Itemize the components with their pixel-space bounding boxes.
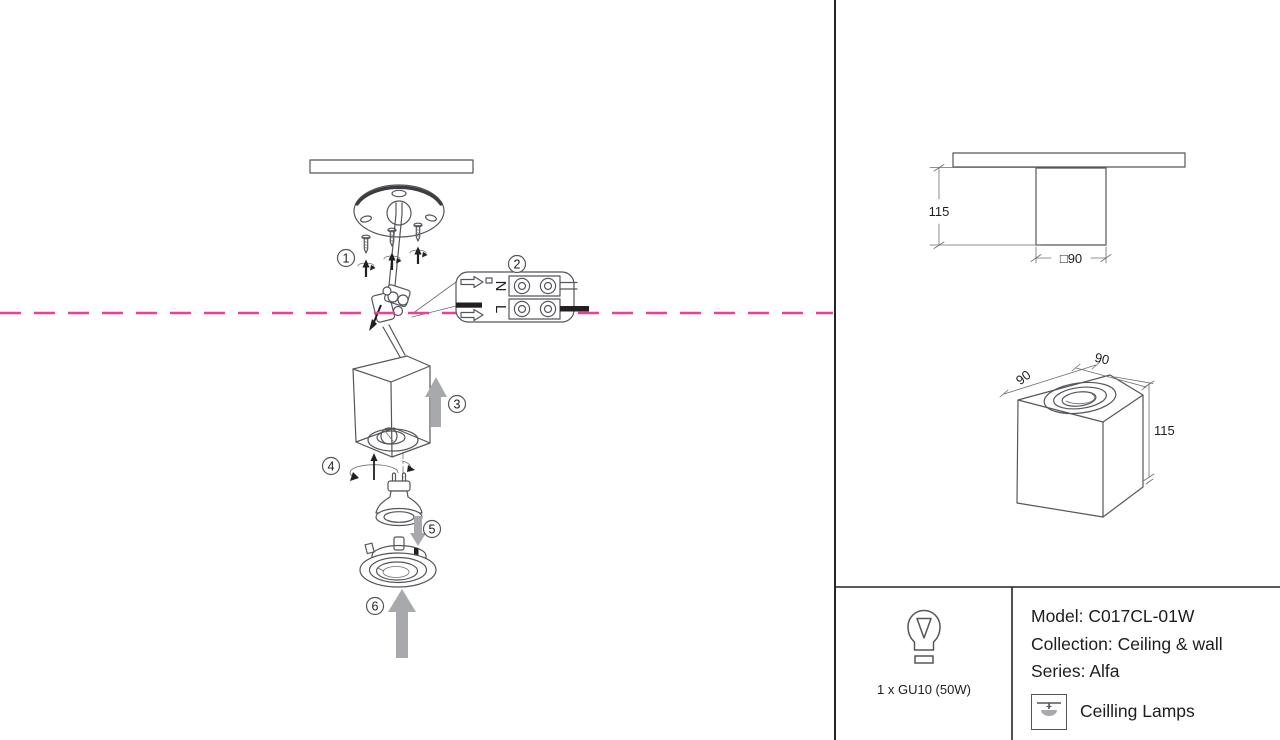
step-1-badge: 1 <box>338 250 355 267</box>
terminal-block-diagram: N L <box>456 272 589 322</box>
step-3-number: 3 <box>454 398 461 412</box>
step-5-badge: 5 <box>424 521 441 538</box>
front-height-dim: 115 <box>929 204 950 219</box>
trim-ring <box>360 537 436 587</box>
step-4-number: 4 <box>328 460 335 474</box>
lamp-body-cube <box>353 356 430 457</box>
step-1-number: 1 <box>343 252 350 266</box>
bulb-caption: 1 x GU10 (50W) <box>877 682 971 697</box>
step-5-number: 5 <box>429 523 436 537</box>
iso-view-drawing: 90 90 115 <box>1000 350 1175 517</box>
model-text: Model: C017CL-01W <box>1031 603 1280 631</box>
iso-width-dim: 90 <box>1093 350 1110 368</box>
step-2-badge: 2 <box>509 256 526 273</box>
front-view-drawing: 115 □90 <box>929 165 1111 267</box>
spec-panel: 1 x GU10 (50W) Model: C017CL-01W Collect… <box>836 588 1280 740</box>
step-3-badge: 3 <box>449 396 466 413</box>
wire-connector-cluster <box>369 284 411 357</box>
leader-line-bottom <box>412 306 456 317</box>
bulb-cell: 1 x GU10 (50W) <box>836 588 1012 740</box>
step-4-badge: 4 <box>323 458 340 475</box>
canopy-wire <box>388 214 402 296</box>
leader-line-top <box>412 282 456 314</box>
step-6-badge: 6 <box>367 598 384 615</box>
iso-height-dim: 115 <box>1154 423 1175 438</box>
terminal-l-label: L <box>492 305 509 313</box>
ceiling-lamp-icon <box>1035 700 1063 724</box>
step-6-number: 6 <box>372 600 379 614</box>
step-6-arrow <box>388 589 416 658</box>
ceiling-lamp-icon-box <box>1031 694 1067 730</box>
bulb-icon <box>904 604 944 672</box>
specs-cell: Model: C017CL-01W Collection: Ceiling & … <box>1012 588 1280 740</box>
spec-sheet-page: 1 N L 2 <box>0 0 1280 740</box>
ceiling-hatch-right <box>953 153 1185 167</box>
category-label: Ceilling Lamps <box>1080 701 1195 722</box>
collection-text: Collection: Ceiling & wall <box>1031 631 1280 659</box>
terminal-n-label: N <box>492 281 509 292</box>
canopy-plate <box>354 185 444 237</box>
step-2-number: 2 <box>514 258 521 272</box>
series-text: Series: Alfa <box>1031 658 1280 686</box>
category-row: Ceilling Lamps <box>1031 694 1280 730</box>
ceiling-hatch-left <box>310 160 473 173</box>
front-width-dim: □90 <box>1060 251 1082 266</box>
iso-depth-dim: 90 <box>1013 367 1034 388</box>
